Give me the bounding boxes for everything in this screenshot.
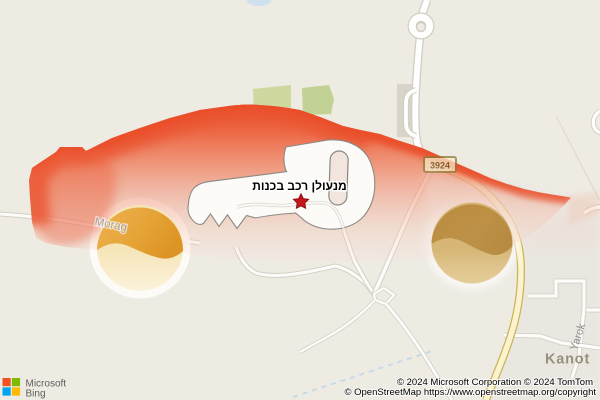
svg-text:מנעולן רכב בכנות: מנעולן רכב בכנות — [252, 179, 346, 193]
svg-text:Bing: Bing — [26, 389, 46, 400]
svg-text:© OpenStreetMap https://www.op: © OpenStreetMap https://www.openstreetma… — [345, 387, 597, 398]
svg-text:Kanot: Kanot — [545, 352, 590, 368]
svg-text:3924: 3924 — [430, 161, 450, 171]
